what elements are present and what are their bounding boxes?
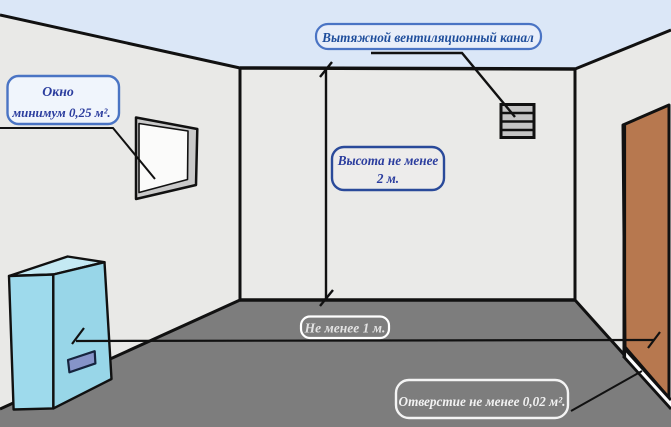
svg-text:минимум 0,25 м².: минимум 0,25 м². (11, 106, 110, 120)
svg-text:Вытяжной вентиляционный канал: Вытяжной вентиляционный канал (321, 30, 534, 45)
svg-text:2 м.: 2 м. (376, 171, 399, 186)
svg-text:Отверстие не менее 0,02 м².: Отверстие не менее 0,02 м². (399, 394, 566, 409)
svg-text:Окно: Окно (42, 84, 74, 99)
svg-text:Высота не менее: Высота не менее (337, 153, 439, 168)
svg-text:Не менее 1 м.: Не менее 1 м. (304, 321, 386, 336)
